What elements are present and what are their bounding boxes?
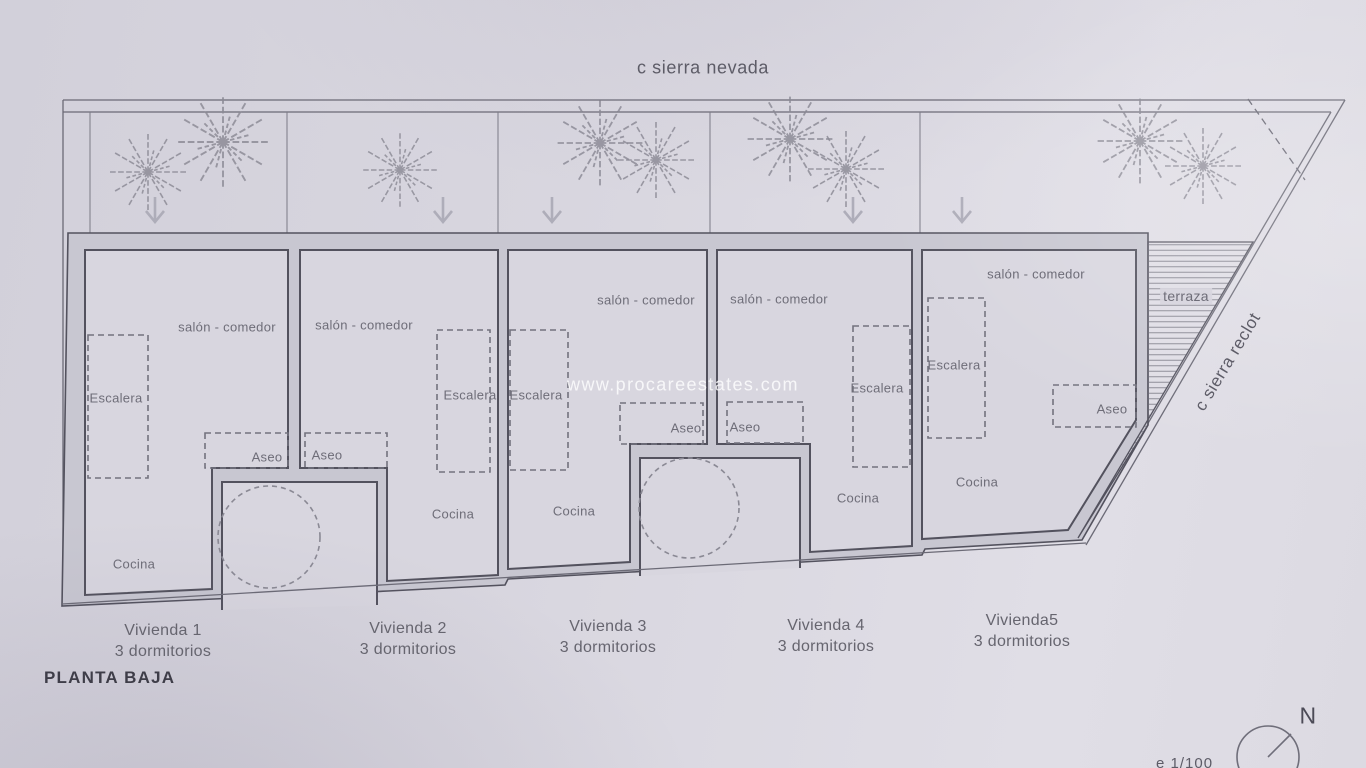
entrance-arrow-icon [543, 197, 561, 222]
unit-name-v3: Vivienda 3 [560, 616, 656, 637]
unit-name-v4: Vivienda 4 [778, 615, 874, 636]
room-label-escalera-v3: Escalera [510, 388, 563, 403]
floorplan-page: c sierra nevada c sierra reclot www.proc… [0, 0, 1366, 768]
room-label-salon-v2: salón - comedor [315, 318, 413, 333]
compass-north-label: N [1300, 703, 1317, 730]
room-label-cocina-v3: Cocina [553, 504, 595, 519]
watermark: www.procareestates.com [567, 375, 799, 396]
room-label-cocina-v4: Cocina [837, 491, 879, 506]
unit-bedrooms-v2: 3 dormitorios [360, 639, 456, 660]
scale-note-text: e 1/100 [1156, 755, 1213, 768]
room-label-escalera-v5: Escalera [928, 358, 981, 373]
tree-icon [1165, 128, 1241, 204]
room-label-cocina-v5: Cocina [956, 475, 998, 490]
room-label-salon-v1: salón - comedor [178, 320, 276, 335]
unit-name-v1: Vivienda 1 [115, 620, 211, 641]
unit-bedrooms-v1: 3 dormitorios [115, 641, 211, 662]
room-label-salon-v3: salón - comedor [597, 293, 695, 308]
tree-icon [363, 133, 437, 207]
unit-caption-v1: Vivienda 1 3 dormitorios [115, 620, 211, 662]
room-label-aseo-v5: Aseo [1097, 402, 1128, 417]
room-label-aseo-v2: Aseo [312, 448, 343, 463]
tree-icon [178, 97, 268, 187]
room-label-aseo-v4: Aseo [730, 420, 761, 435]
scale-note: e 1/100 [1156, 755, 1266, 768]
unit-bedrooms-v5: 3 dormitorios [974, 631, 1070, 652]
tree-icon [110, 134, 186, 210]
room-label-aseo-v1: Aseo [252, 450, 283, 465]
room-label-escalera-v4: Escalera [851, 381, 904, 396]
garden-trees [110, 97, 1241, 210]
entrance-arrow-icon [434, 197, 452, 222]
tree-icon [808, 131, 884, 207]
street-label-top: c sierra nevada [637, 58, 769, 79]
unit-caption-v5: Vivienda5 3 dormitorios [974, 610, 1070, 652]
entrance-arrow-icon [953, 197, 971, 222]
tree-icon [558, 101, 643, 186]
entrance-arrow-icon [844, 197, 862, 222]
floor-title: PLANTA BAJA [44, 668, 175, 688]
room-label-escalera-v1: Escalera [90, 391, 143, 406]
terrace-label: terraza [1160, 288, 1212, 304]
entrance-arrows [146, 197, 971, 222]
tree-icon [618, 122, 694, 198]
unit-bedrooms-v4: 3 dormitorios [778, 636, 874, 657]
patio-between-v1-v2 [222, 482, 377, 610]
unit-caption-v3: Vivienda 3 3 dormitorios [560, 616, 656, 658]
room-label-cocina-v1: Cocina [113, 557, 155, 572]
plot-corner-dashed-line [1248, 99, 1305, 180]
patio-between-v3-v4 [640, 458, 800, 576]
unit-name-v5: Vivienda5 [974, 610, 1070, 631]
unit-name-v2: Vivienda 2 [360, 618, 456, 639]
unit-caption-v2: Vivienda 2 3 dormitorios [360, 618, 456, 660]
room-label-cocina-v2: Cocina [432, 507, 474, 522]
room-label-salon-v4: salón - comedor [730, 292, 828, 307]
unit-bedrooms-v3: 3 dormitorios [560, 637, 656, 658]
room-label-escalera-v2: Escalera [444, 388, 497, 403]
compass-needle [1268, 734, 1291, 757]
room-label-aseo-v3: Aseo [671, 421, 702, 436]
room-label-salon-v5: salón - comedor [987, 267, 1085, 282]
tree-icon [1098, 99, 1183, 184]
unit-caption-v4: Vivienda 4 3 dormitorios [778, 615, 874, 657]
